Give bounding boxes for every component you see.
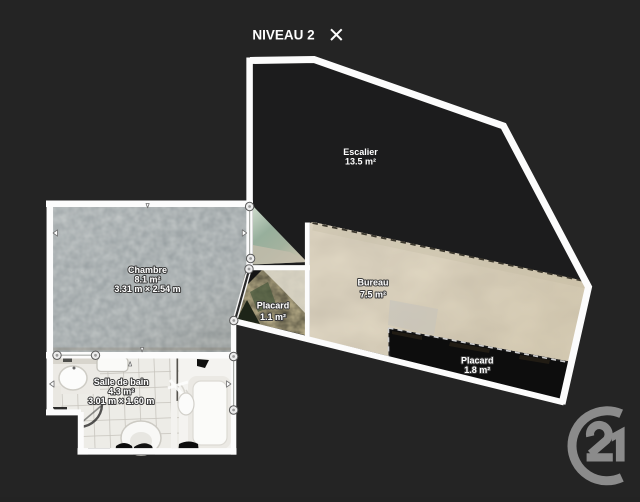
svg-text:Chambre: Chambre — [128, 265, 167, 275]
svg-text:8.1 m²: 8.1 m² — [134, 275, 160, 285]
svg-text:3.31 m × 2.54 m: 3.31 m × 2.54 m — [114, 284, 180, 294]
svg-text:1.1 m²: 1.1 m² — [260, 312, 286, 322]
svg-text:4.3 m²: 4.3 m² — [108, 386, 134, 396]
svg-text:Escalier: Escalier — [343, 147, 378, 157]
svg-text:NIVEAU 2: NIVEAU 2 — [252, 28, 314, 43]
svg-text:Bureau: Bureau — [357, 277, 388, 287]
svg-text:7.5 m²: 7.5 m² — [360, 289, 386, 299]
svg-text:Placard: Placard — [461, 356, 494, 366]
svg-text:3.01 m × 1.60 m: 3.01 m × 1.60 m — [88, 396, 154, 406]
svg-text:Placard: Placard — [257, 301, 290, 311]
svg-text:1.8 m²: 1.8 m² — [464, 365, 490, 375]
svg-text:13.5 m²: 13.5 m² — [345, 156, 376, 166]
